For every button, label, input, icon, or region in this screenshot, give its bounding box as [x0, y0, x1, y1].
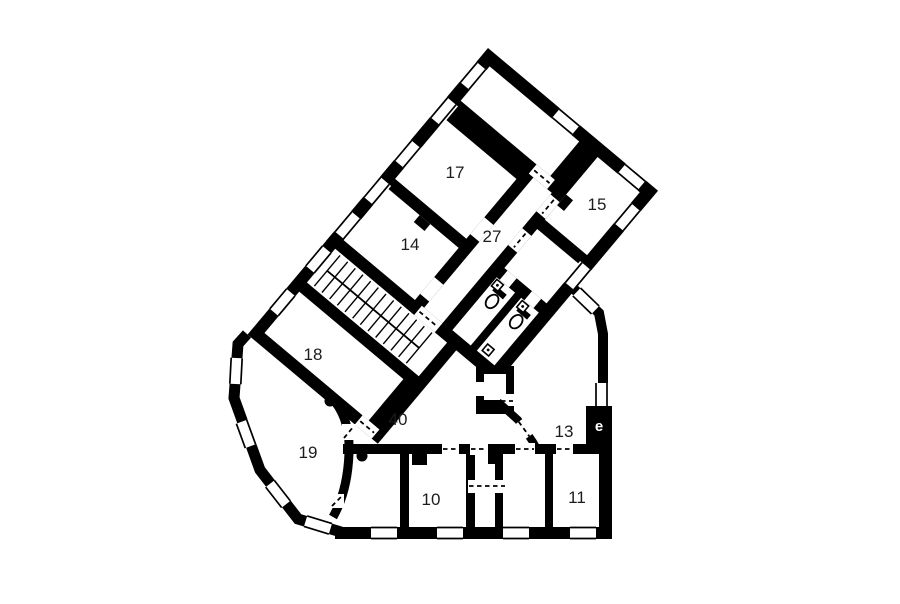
room-label-40: 40: [389, 410, 408, 429]
room-label-19: 19: [299, 443, 318, 462]
window-symbol: [437, 525, 463, 541]
pilaster: [412, 454, 427, 465]
room-label-17: 17: [446, 163, 465, 182]
door-opening-symbol: [474, 382, 484, 396]
room-label-15: 15: [588, 195, 607, 214]
room-label-27: 27: [483, 227, 502, 246]
room-label-14: 14: [401, 235, 420, 254]
window-symbol: [594, 383, 610, 409]
window-symbol: [570, 525, 596, 541]
room-label-18: 18: [304, 345, 323, 364]
floor-plan: 17 14 27 15 18 19 40 13 10 11 e: [0, 0, 900, 604]
window-symbol: [227, 358, 244, 385]
floor-plan-page: 17 14 27 15 18 19 40 13 10 11 e: [0, 0, 900, 604]
column-dot-icon: [325, 396, 336, 407]
pilaster: [488, 454, 500, 464]
room-label-10: 10: [422, 490, 441, 509]
elevator-label: e: [595, 418, 603, 435]
window-symbol: [371, 525, 397, 541]
room-label-13: 13: [555, 422, 574, 441]
window-symbol: [503, 525, 529, 541]
room-label-11: 11: [568, 488, 586, 507]
